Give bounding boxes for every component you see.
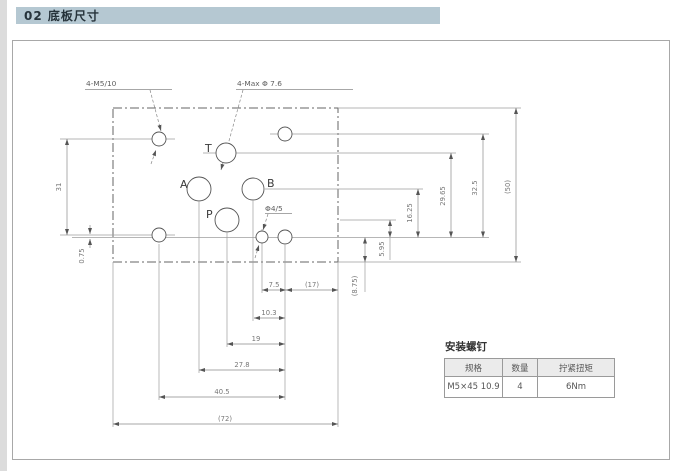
cell-spec: M5×45 10.9 — [445, 377, 503, 398]
port-p-label: P — [206, 208, 213, 221]
leader-small-hole-bottom — [255, 245, 259, 258]
table-title: 安装螺钉 — [445, 339, 615, 354]
table-header-row: 规格 数量 拧紧扭矩 — [445, 359, 615, 377]
header-qty: 数量 — [503, 359, 538, 377]
dim-17: (17) — [305, 281, 319, 289]
mounting-screws-table: 规格 数量 拧紧扭矩 M5×45 10.9 4 6Nm — [444, 358, 615, 398]
port-b-label: B — [267, 177, 275, 190]
callout-mounting-thread: 4-M5/10 — [86, 79, 117, 88]
dim-29-65: 29.65 — [439, 186, 447, 205]
cell-torque: 6Nm — [538, 377, 615, 398]
subplate-dimension-drawing: 4-M5/10 4-Max Φ 7.6 Φ4/5 T A B P 31 0.75… — [0, 0, 680, 471]
dim-10-3: 10.3 — [261, 309, 276, 317]
dim-32-5: 32.5 — [471, 180, 479, 195]
dim-8-75: (8.75) — [351, 275, 359, 296]
dim-19: 19 — [252, 335, 261, 343]
header-torque: 拧紧扭矩 — [538, 359, 615, 377]
pilot-hole-circle — [256, 231, 268, 243]
callout-small-hole: Φ4/5 — [265, 204, 283, 213]
mounting-hole-bottom-left — [152, 228, 166, 242]
dim-27-8: 27.8 — [234, 361, 249, 369]
mounting-hole-top-left — [152, 132, 166, 146]
port-b-circle — [242, 178, 264, 200]
leader-small-hole-top — [263, 214, 268, 230]
leader-m5-top — [150, 90, 161, 131]
catalog-page: 02 底板尺寸 — [0, 0, 680, 471]
leader-m5-bottom — [151, 150, 156, 164]
dim-31: 31 — [55, 183, 63, 192]
table-row: M5×45 10.9 4 6Nm — [445, 377, 615, 398]
dim-72: (72) — [218, 415, 232, 423]
dim-16-25: 16.25 — [406, 203, 414, 222]
header-spec: 规格 — [445, 359, 503, 377]
port-a-label: A — [180, 178, 188, 191]
mounting-hole-bottom-right — [278, 230, 292, 244]
dim-5-95: 5.95 — [378, 241, 386, 256]
dim-0-75: 0.75 — [78, 248, 86, 263]
mounting-screws-section: 安装螺钉 规格 数量 拧紧扭矩 M5×45 10.9 4 6Nm — [444, 339, 615, 398]
port-p-circle — [215, 208, 239, 232]
dim-7-5: 7.5 — [269, 281, 280, 289]
mounting-hole-top-right — [278, 127, 292, 141]
cell-qty: 4 — [503, 377, 538, 398]
dim-40-5: 40.5 — [214, 388, 229, 396]
port-t-label: T — [204, 142, 212, 155]
leader-lines — [150, 90, 268, 258]
port-a-circle — [187, 177, 211, 201]
subplate-outline — [113, 108, 338, 262]
port-t-circle — [216, 143, 236, 163]
dim-50: (50) — [504, 180, 512, 194]
callout-port-max-dia: 4-Max Φ 7.6 — [237, 79, 282, 88]
